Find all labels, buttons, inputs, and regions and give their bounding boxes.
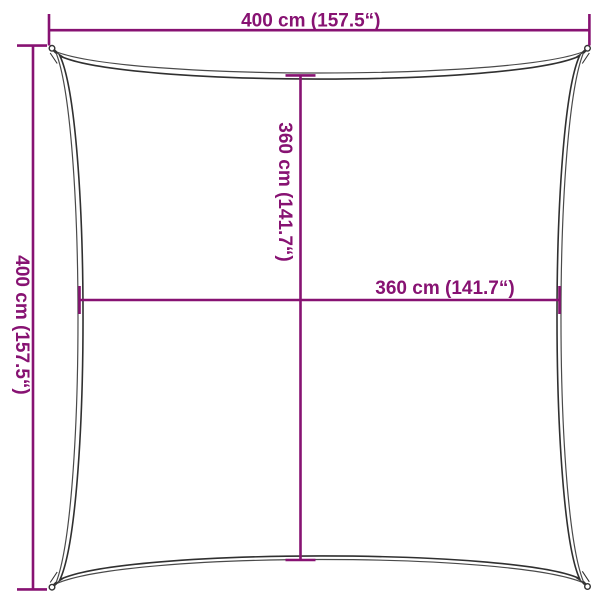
svg-text:360 cm (141.7“): 360 cm (141.7“) xyxy=(375,278,514,299)
svg-text:360 cm (141.7“): 360 cm (141.7“) xyxy=(274,122,295,261)
svg-text:400 cm (157.5“): 400 cm (157.5“) xyxy=(11,255,32,394)
svg-text:400 cm (157.5“): 400 cm (157.5“) xyxy=(241,10,380,31)
